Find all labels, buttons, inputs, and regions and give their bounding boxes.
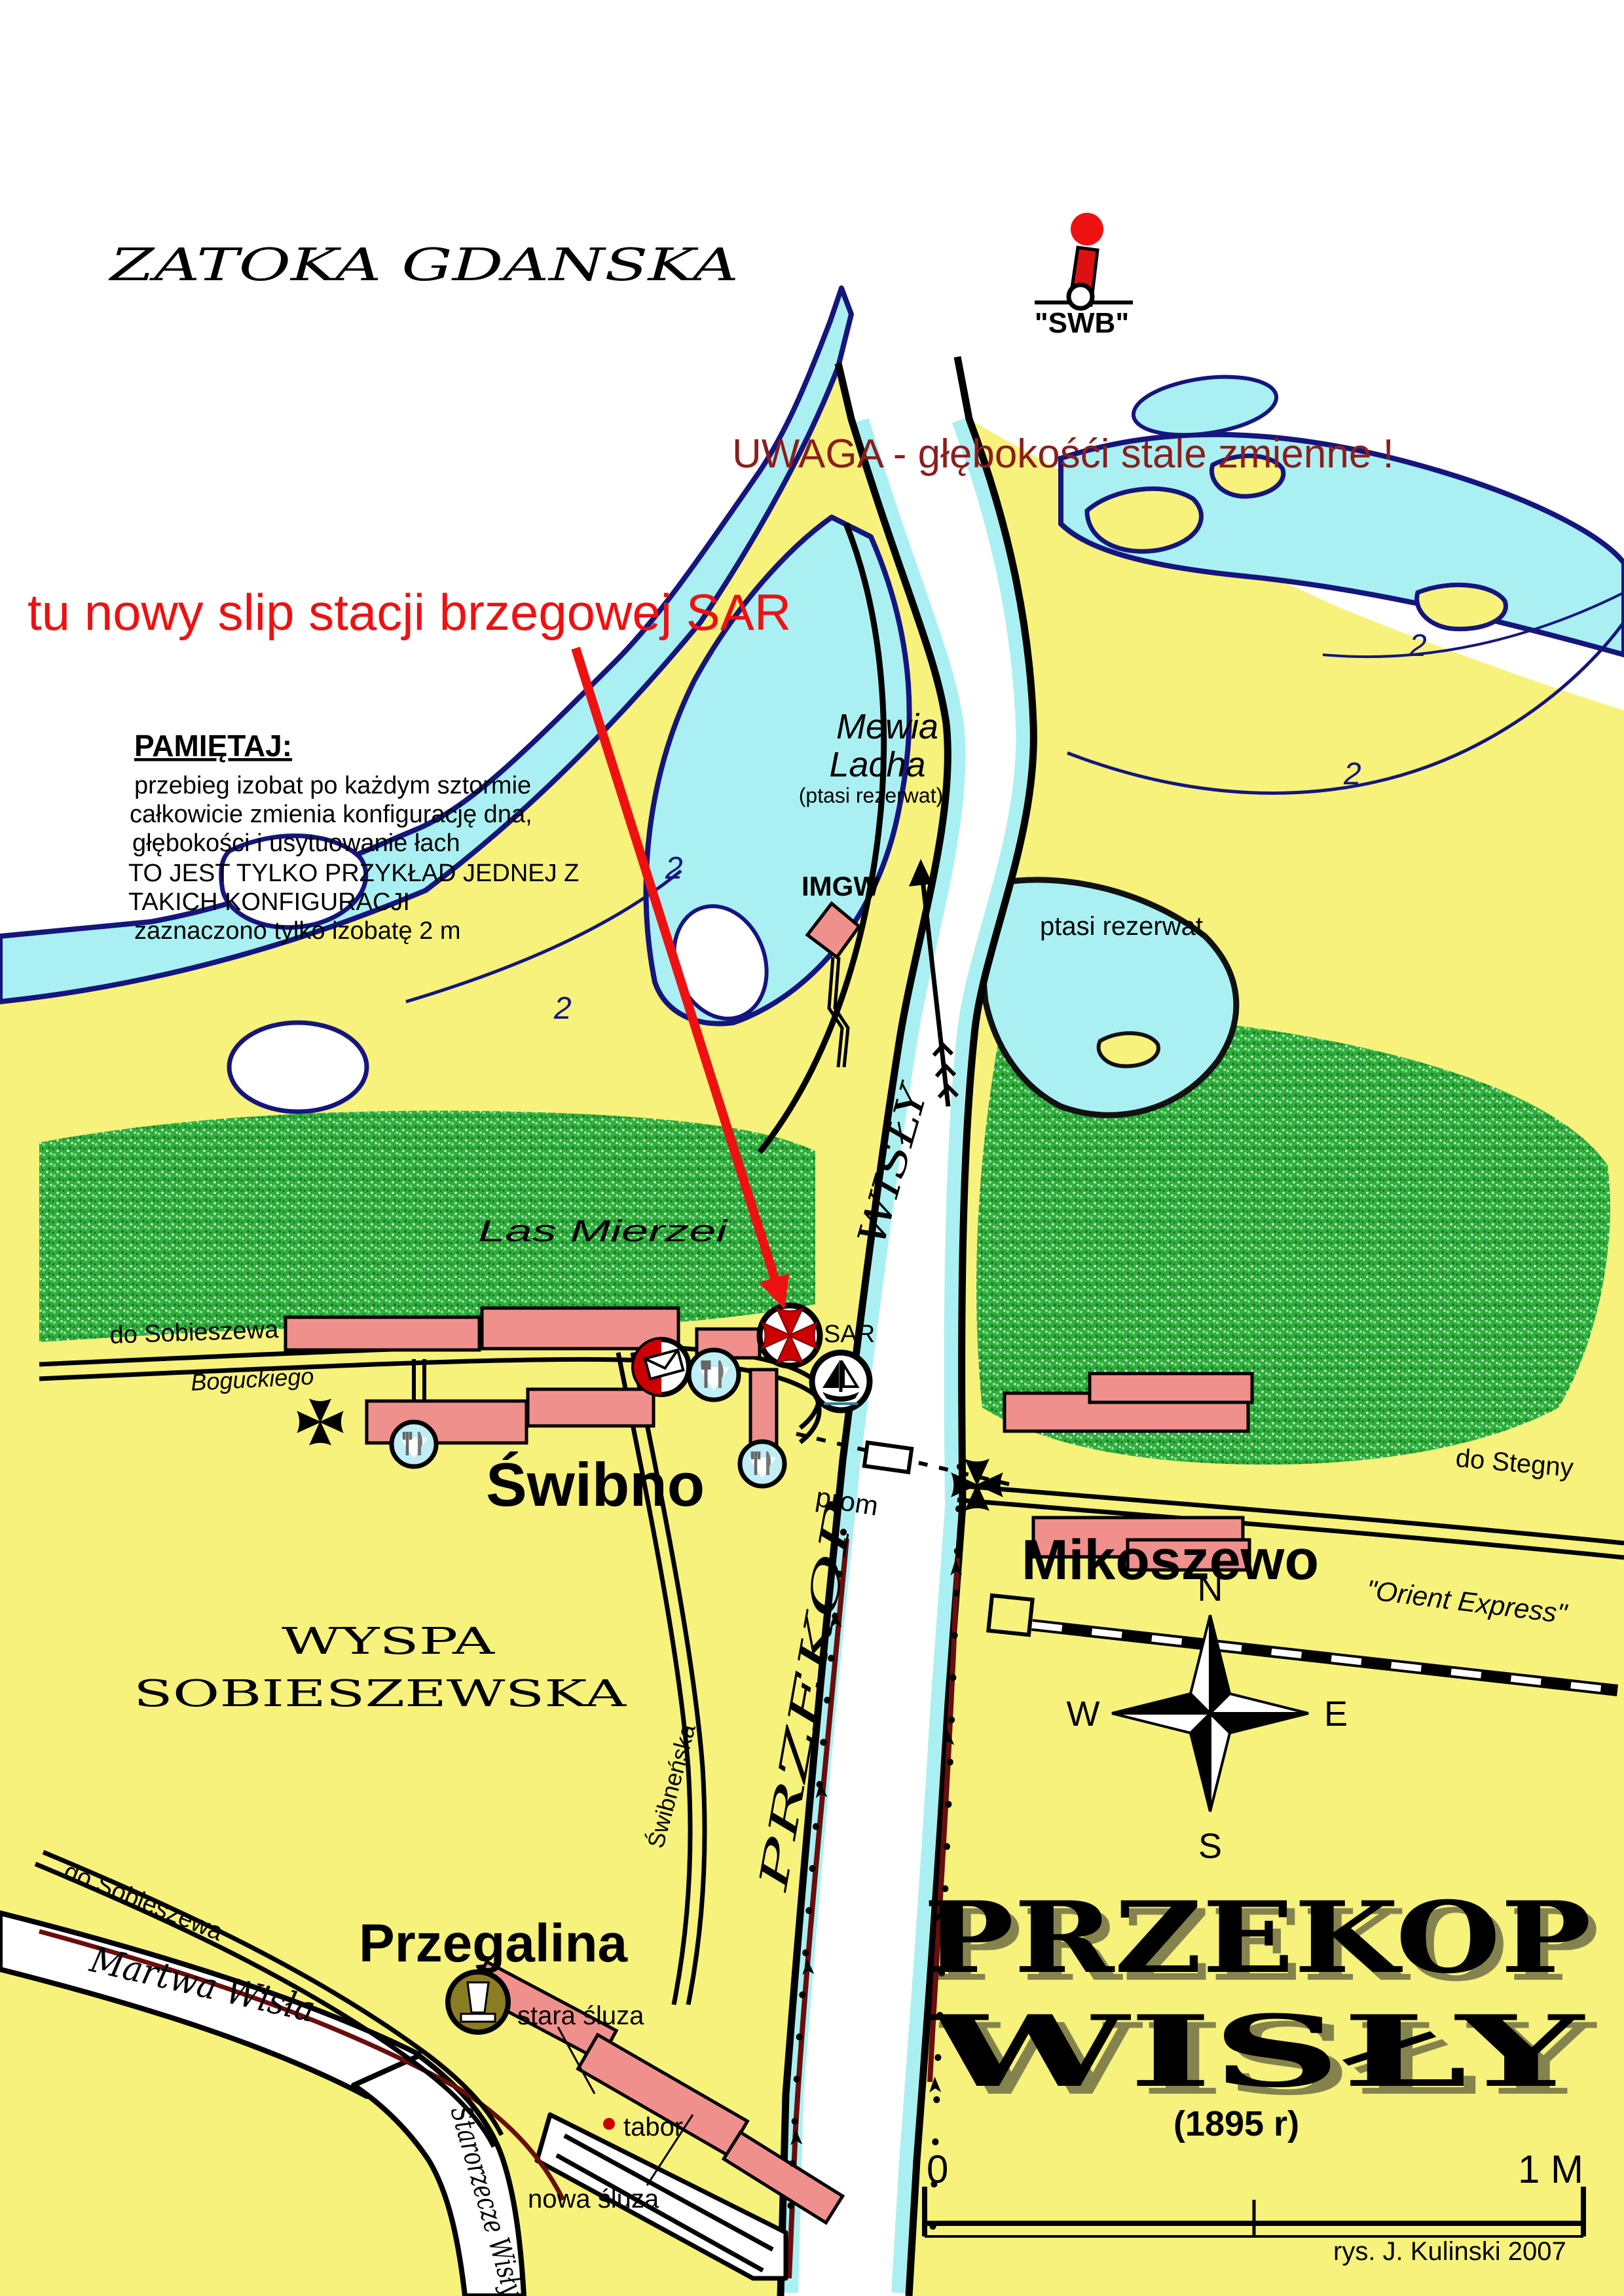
reminder-line: TAKICH KONFIGURACJI [128,888,410,916]
reminder-line: przebieg izobat po każdym sztormie [134,772,531,799]
credit: rys. J. Kulinski 2007 [1333,2237,1566,2266]
town-mikoszewo: Mikoszewo [1022,1529,1319,1592]
island-name: WYSPA [282,1620,495,1663]
lock-icon [448,1972,508,2032]
island-name: SOBIESZEWSKA [134,1673,627,1715]
islet [229,1023,367,1112]
mewia-lacha-label: Lacha [829,745,925,784]
isobath-label: 2 [665,851,683,886]
compass-label-e: E [1324,1694,1348,1734]
island [1417,585,1506,629]
mewia-lacha-sub: (ptasi rezerwat) [799,784,944,807]
marina-sailboat-icon [812,1353,870,1410]
reminder-line: głębokości i usytuowanie łach [132,829,460,857]
map-page: ZATOKA GDANSKA "SWB" UWAGA - głębokośći … [0,0,1624,2296]
new-sluice-label: nowa śluza [528,2185,659,2214]
compass-label-s: S [1198,1827,1222,1866]
las-mierzei-label: Las Mierzei [478,1214,729,1248]
map-title-year: (1895 r) [1173,2104,1299,2143]
scale-end: 1 M [1518,2147,1583,2191]
reminder-line: TO JEST TYLKO PRZYKŁAD JEDNEJ Z [128,860,579,887]
old-sluice-label: stara śluza [517,2001,644,2030]
compass-label-n: N [1198,1569,1223,1609]
ferry-icon [864,1442,912,1472]
building [750,1370,777,1447]
reminder-line: zaznaczono tylko izobatę 2 m [134,917,461,945]
isobath-label: 2 [553,991,572,1026]
swb-label: "SWB" [1035,307,1129,339]
reminder-title: PAMIĘTAJ: [134,729,292,763]
building [528,1389,654,1426]
depot-dot [603,2118,615,2130]
reminder-line: całkowicie zmienia konfigurację dna, [130,801,532,828]
restaurant-icon [392,1422,436,1467]
sar-station-icon [760,1305,820,1366]
depot-label: tabor [623,2113,683,2141]
isobath-label: 2 [1409,629,1427,663]
warning-text: UWAGA - głębokośći stale zmienne ! [732,431,1394,477]
town-przegalina: Przegalina [359,1914,629,1973]
map-title-line1: PRZEKOP [923,1880,1591,1995]
building [1090,1374,1252,1402]
building [286,1317,479,1350]
bird-reserve-label: ptasi rezerwat [1040,912,1203,941]
sar-label: SAR [824,1321,875,1348]
scale-start: 0 [927,2147,948,2191]
isobath-label: 2 [1343,757,1361,792]
compass-label-w: W [1067,1694,1100,1734]
imgw-label: IMGW [802,871,879,902]
yacht-club-icon [634,1339,689,1394]
island [1087,489,1201,552]
sar-annotation-text: tu nowy slip stacji brzegowej SAR [28,583,791,641]
map-canvas: ZATOKA GDANSKA "SWB" UWAGA - głębokośći … [0,0,1624,2296]
mewia-lacha-label: Mewia [836,707,938,746]
restaurant-icon [740,1442,784,1486]
map-title-line2: WISŁY [926,1994,1585,2109]
sea-title: ZATOKA GDANSKA [108,240,739,291]
town-swibno: Świbno [486,1450,705,1519]
lagoon-islet [1099,1033,1158,1066]
restaurant-icon [689,1350,739,1400]
